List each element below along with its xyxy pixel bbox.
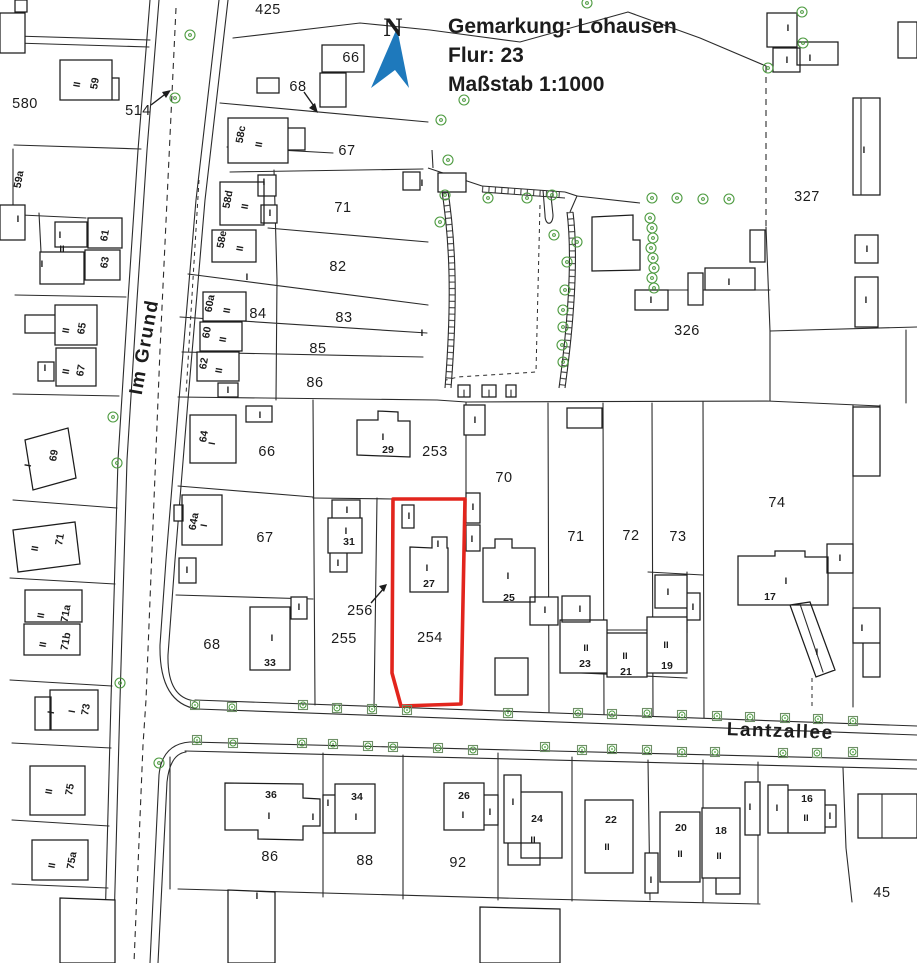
storey-label-I: I [426, 563, 429, 574]
tree-icon [645, 213, 655, 223]
storey-label-I: I [462, 810, 465, 821]
storey-label-I: I [259, 410, 262, 421]
tree-icon [648, 253, 658, 263]
house-label-17: 17 [764, 591, 776, 603]
storey-label-I: I [346, 505, 349, 516]
house-label-22: 22 [605, 814, 617, 826]
storey-label-I: I [786, 55, 789, 66]
house-label-73: 73 [79, 703, 93, 717]
parcel-label-253: 253 [422, 444, 448, 460]
storey-label-II: II [59, 244, 64, 255]
tree-icon [459, 95, 469, 105]
parcel-label-66: 66 [342, 50, 359, 66]
parcel-boundaries [0, 12, 917, 904]
street-tree-icon [678, 748, 687, 757]
map-labels: Im GrundLantzallee4255805146668677182848… [12, 2, 891, 902]
storey-label-II: II [622, 651, 627, 662]
storey-label-I: I [839, 553, 842, 564]
house-label-64: 64 [197, 430, 211, 444]
house-label-75: 75 [63, 783, 77, 797]
house-label-59: 59 [88, 77, 102, 91]
storey-label-I: I [312, 812, 315, 823]
parcel-label-68: 68 [289, 79, 306, 95]
storey-label-I: I [337, 558, 340, 569]
storey-label-I: I [421, 328, 424, 339]
parcel-label-68: 68 [203, 637, 220, 653]
house-label-26: 26 [458, 790, 470, 802]
house-label-16: 16 [801, 793, 813, 805]
parcel-label-92: 92 [449, 855, 466, 871]
tree-icon [646, 243, 656, 253]
tree-icon [698, 194, 708, 204]
storey-label-II: II [803, 813, 808, 824]
storey-label-I: I [59, 230, 62, 241]
storey-label-I: I [650, 295, 653, 306]
parcel-label-88: 88 [356, 853, 373, 869]
street-tree-icon [469, 746, 478, 755]
storey-label-I: I [650, 875, 653, 886]
storey-label-I: I [749, 802, 752, 813]
storey-label-I: I [268, 811, 271, 822]
storey-label-I: I [489, 807, 492, 818]
house-label-67: 67 [74, 364, 88, 378]
header-gemarkung: Gemarkung: Lohausen [448, 15, 677, 38]
street-tree-icon [813, 749, 822, 758]
tree-icon [797, 7, 807, 17]
storey-label-I: I [256, 891, 259, 902]
house-label-65: 65 [75, 322, 89, 336]
parcel-label-86: 86 [261, 849, 278, 865]
parcel-label-256: 256 [347, 603, 373, 619]
house-label-25: 25 [503, 592, 515, 604]
storey-label-I: I [186, 565, 189, 576]
storey-label-II: II [530, 835, 535, 846]
parcel-label-514: 514 [125, 103, 151, 119]
street-tree-icon [329, 740, 338, 749]
parcel-label-326: 326 [674, 323, 700, 339]
storey-label-I: I [471, 534, 474, 545]
street-tree-icon [434, 744, 443, 753]
storey-label-I: I [44, 363, 47, 374]
parcel-label-66: 66 [258, 444, 275, 460]
storey-label-I: I [507, 571, 510, 582]
parcel-label-327: 327 [794, 189, 820, 205]
parcel-label-45: 45 [873, 885, 890, 901]
storey-label-I: I [816, 647, 819, 658]
parcel-label-255: 255 [331, 631, 357, 647]
tree-icon [154, 758, 164, 768]
storey-label-I: I [355, 812, 358, 823]
parcel-label-73: 73 [669, 529, 686, 545]
street-tree-icon [504, 709, 513, 718]
parcel-label-85: 85 [309, 341, 326, 357]
map-canvas: N Gemarkung: Lohausen Flur: 23 Maßstab 1… [0, 0, 917, 963]
street-tree-icon [849, 748, 858, 757]
street-tree-icon [389, 743, 398, 752]
storey-label-I: I [861, 623, 864, 634]
storey-label-I: I [437, 539, 440, 550]
storey-label-I: I [327, 798, 330, 809]
street-name-Lantzallee: Lantzallee [726, 719, 834, 744]
parcel-label-71: 71 [334, 200, 351, 216]
street-tree-icon [578, 746, 587, 755]
storey-label-I: I [421, 178, 424, 189]
house-label-71: 71 [53, 533, 67, 547]
storey-label-I: I [17, 214, 20, 225]
parcel-label-67: 67 [256, 530, 273, 546]
storey-label-I: I [382, 432, 385, 443]
storey-label-I: I [41, 259, 44, 270]
tree-icon [763, 63, 773, 73]
storey-label-I: I [263, 177, 266, 188]
parcel-label-82: 82 [329, 259, 346, 275]
house-label-34: 34 [351, 791, 363, 803]
tree-icon [724, 194, 734, 204]
parcel-label-71: 71 [567, 529, 584, 545]
storey-label-II: II [716, 851, 721, 862]
storey-label-I: I [271, 633, 274, 644]
storey-label-II: II [663, 640, 668, 651]
map-header: Gemarkung: Lohausen Flur: 23 Maßstab 1:1… [448, 15, 677, 96]
storey-label-I: I [829, 811, 832, 822]
parcel-label-580: 580 [12, 96, 38, 112]
house-label-62: 62 [197, 357, 211, 371]
parcel-label-84: 84 [249, 306, 266, 322]
house-label-23: 23 [579, 658, 591, 670]
tree-icon [558, 305, 568, 315]
tree-icon [185, 30, 195, 40]
house-label-27: 27 [423, 578, 435, 590]
storey-label-I: I [692, 602, 695, 613]
storey-label-I: I [298, 602, 301, 613]
storey-label-I: I [246, 272, 249, 283]
street-tree-icon [299, 701, 308, 710]
tree-icon [108, 412, 118, 422]
street-tree-icon [574, 709, 583, 718]
storey-label-I: I [269, 208, 272, 219]
tree-icon [549, 230, 559, 240]
tree-icon [647, 223, 657, 233]
house-label-18: 18 [715, 825, 727, 837]
storey-label-I: I [776, 803, 779, 814]
tree-icon [582, 0, 592, 8]
tree-icon [557, 340, 567, 350]
house-label-31: 31 [343, 536, 355, 548]
tree-icon [483, 193, 493, 203]
storey-label-I: I [866, 244, 869, 255]
storey-label-I: I [544, 605, 547, 616]
storey-label-I: I [785, 576, 788, 587]
house-label-33: 33 [264, 657, 276, 669]
house-label-29: 29 [382, 444, 394, 456]
parcel-label-83: 83 [335, 310, 352, 326]
storey-label-II: II [583, 643, 588, 654]
parcel-label-425: 425 [255, 2, 281, 18]
house-label-59a: 59a [12, 170, 27, 189]
storey-label-I: I [579, 604, 582, 615]
parcel-label-67: 67 [338, 143, 355, 159]
tree-icon [572, 237, 582, 247]
house-label-60: 60 [200, 326, 214, 340]
street-tree-icon [364, 742, 373, 751]
storey-label-II: II [604, 842, 609, 853]
house-label-24: 24 [531, 813, 543, 825]
storey-label-I: I [408, 511, 411, 522]
house-label-63: 63 [98, 256, 112, 270]
street-name-Im Grund: Im Grund [126, 298, 163, 397]
header-massstab: Maßstab 1:1000 [448, 73, 604, 96]
header-flur: Flur: 23 [448, 44, 524, 67]
storey-label-II: II [677, 849, 682, 860]
storey-label-I: I [667, 587, 670, 598]
tree-icon [647, 193, 657, 203]
storey-label-I: I [728, 277, 731, 288]
tree-icon [647, 273, 657, 283]
tree-icon [649, 263, 659, 273]
storey-label-I: I [787, 23, 790, 34]
cadastral-map-page: N Gemarkung: Lohausen Flur: 23 Maßstab 1… [0, 0, 917, 963]
tree-icon [443, 155, 453, 165]
house-label-19: 19 [661, 660, 673, 672]
north-letter: N [384, 13, 403, 42]
storey-label-I: I [809, 53, 812, 64]
parcel-label-86: 86 [306, 375, 323, 391]
storey-label-I: I [865, 295, 868, 306]
buildings [0, 0, 917, 963]
tree-icon [672, 193, 682, 203]
storey-label-I: I [863, 145, 866, 156]
street-tree-icon [298, 739, 307, 748]
house-label-20: 20 [675, 822, 687, 834]
street-tree-icon [229, 739, 238, 748]
tree-icon [648, 233, 658, 243]
storey-label-I: I [472, 502, 475, 513]
house-label-69: 69 [47, 449, 61, 463]
street-tree-icon [541, 743, 550, 752]
storey-label-I: I [227, 385, 230, 396]
storey-label-I: I [345, 526, 348, 537]
house-label-21: 21 [620, 666, 632, 678]
street-tree-icon [608, 710, 617, 719]
tree-icon [562, 257, 572, 267]
tree-icon [435, 217, 445, 227]
parcel-label-74: 74 [768, 495, 785, 511]
tree-icon [436, 115, 446, 125]
tree-icon [112, 458, 122, 468]
storey-label-I: I [474, 415, 477, 426]
street-tree-icon [193, 736, 202, 745]
parcel-label-254: 254 [417, 630, 443, 646]
house-label-61: 61 [98, 229, 112, 243]
parcel-label-70: 70 [495, 470, 512, 486]
storey-label-I: I [512, 797, 515, 808]
house-label-36: 36 [265, 789, 277, 801]
parcel-label-72: 72 [622, 528, 639, 544]
highlighted-parcel-outline [392, 499, 465, 706]
